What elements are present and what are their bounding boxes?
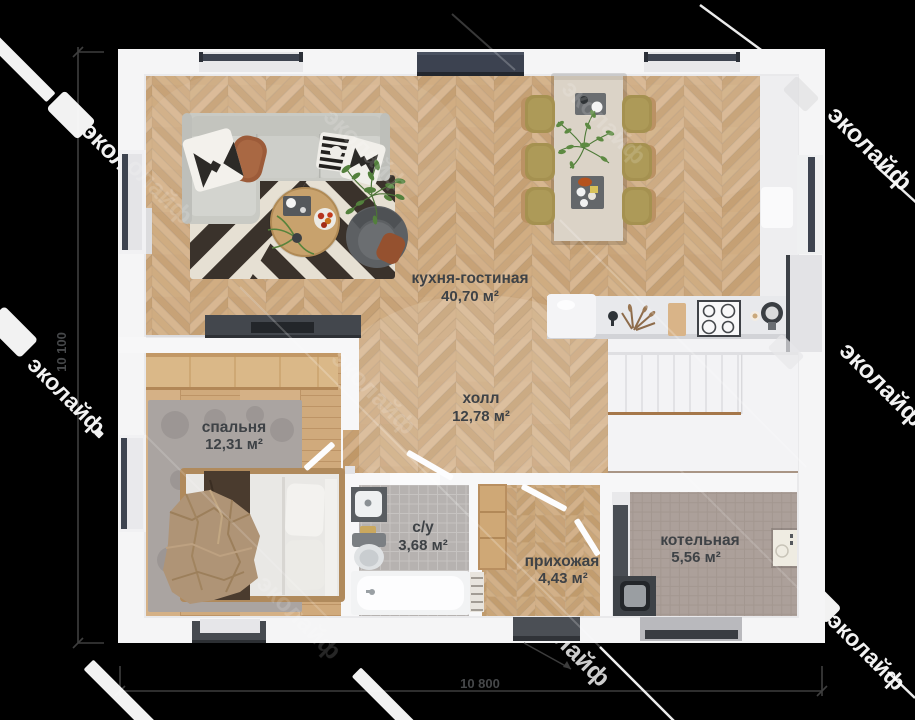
svg-text:4,43 м²: 4,43 м² xyxy=(538,570,587,587)
svg-text:40,70 м²: 40,70 м² xyxy=(441,288,499,305)
svg-text:прихожая: прихожая xyxy=(525,553,600,570)
svg-text:5,56 м²: 5,56 м² xyxy=(671,549,720,566)
svg-text:12,78 м²: 12,78 м² xyxy=(452,408,510,425)
svg-text:3,68 м²: 3,68 м² xyxy=(398,537,447,554)
svg-text:котельная: котельная xyxy=(660,532,739,549)
svg-text:кухня-гостиная: кухня-гостиная xyxy=(411,270,528,287)
svg-text:10 800: 10 800 xyxy=(460,676,500,691)
svg-text:12,31 м²: 12,31 м² xyxy=(205,436,263,453)
svg-text:спальня: спальня xyxy=(202,419,266,436)
svg-text:холл: холл xyxy=(462,390,499,407)
svg-text:с/у: с/у xyxy=(412,519,434,536)
